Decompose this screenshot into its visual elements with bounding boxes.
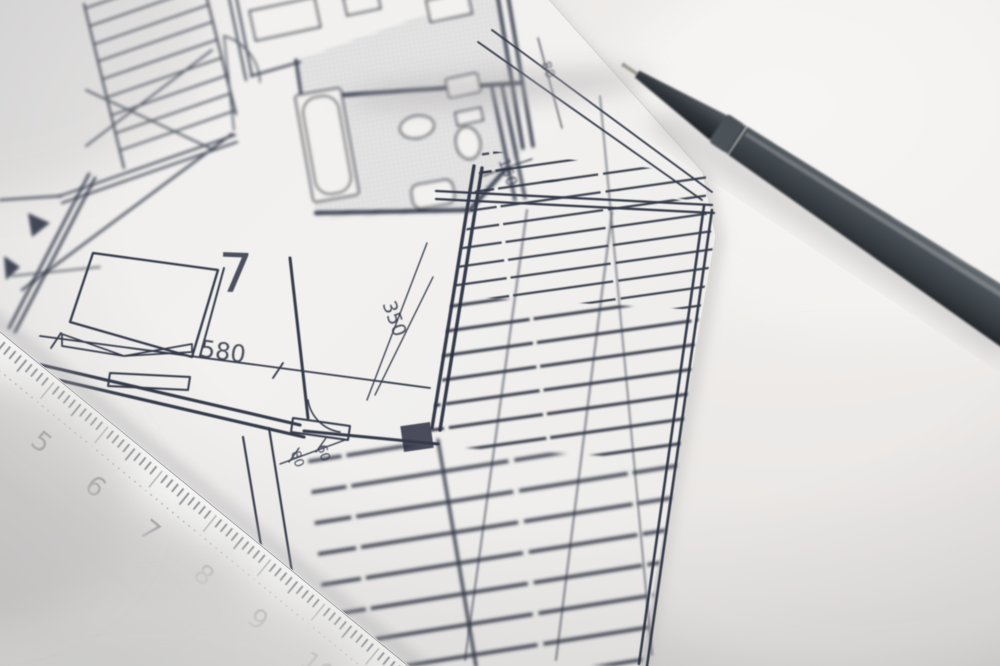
lighting-overlay [0, 0, 1000, 666]
vignette [0, 0, 1000, 666]
floor-plan-photo-scene: 80 150 7 580 80 60 350 [0, 0, 1000, 666]
photo-canvas: 80 150 7 580 80 60 350 [0, 0, 1000, 666]
